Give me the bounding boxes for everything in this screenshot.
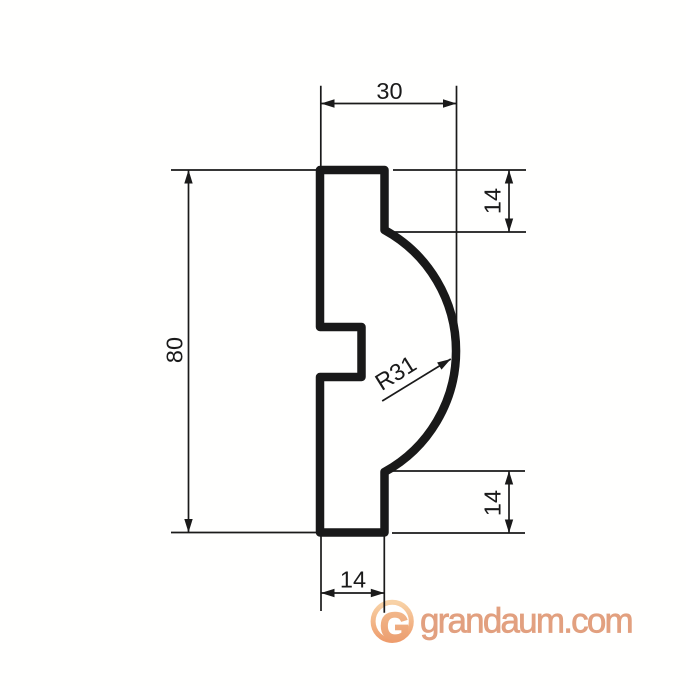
svg-text:14: 14 bbox=[480, 490, 506, 516]
svg-text:14: 14 bbox=[340, 566, 366, 592]
svg-text:14: 14 bbox=[480, 188, 506, 214]
svg-text:30: 30 bbox=[376, 78, 402, 104]
svg-text:80: 80 bbox=[162, 337, 188, 363]
svg-text:grandaum.com: grandaum.com bbox=[420, 601, 632, 640]
